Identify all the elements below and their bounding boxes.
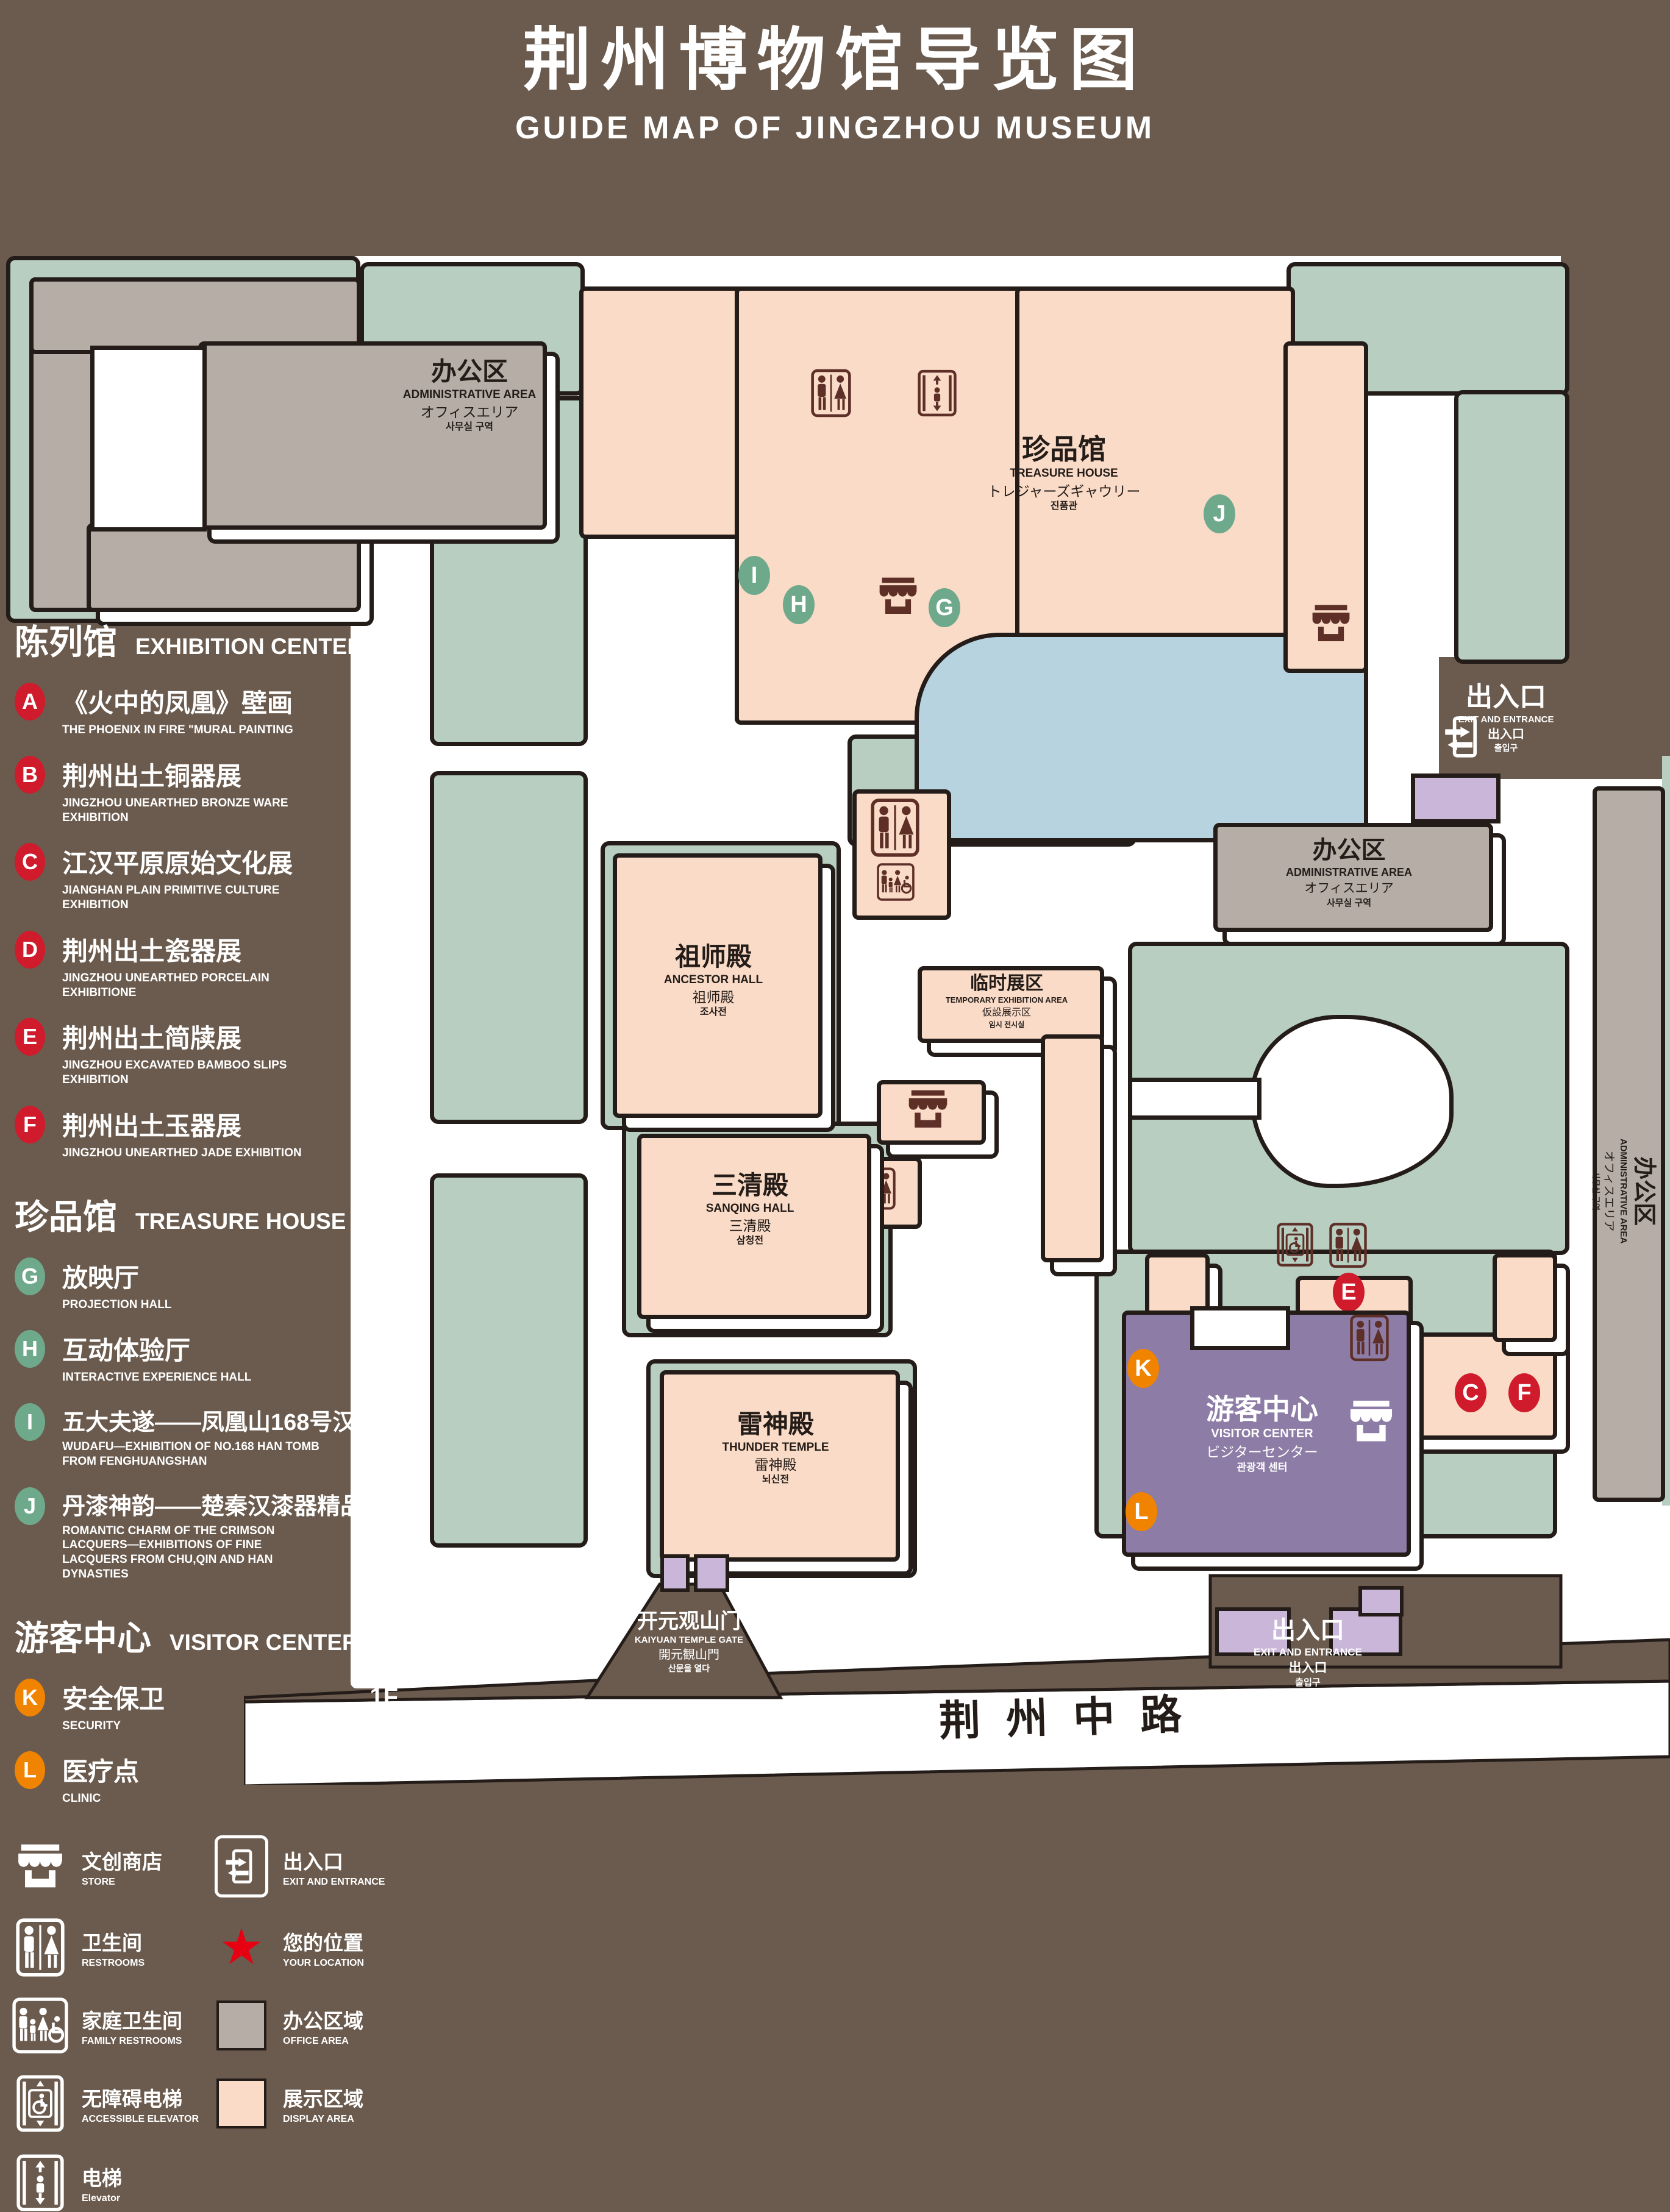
- legend-item-c: C 江汉平原原始文化展 JIANGHAN PLAIN PRIMITIVE CUL…: [15, 843, 430, 912]
- accessible-elevator-icon: [1277, 1219, 1313, 1270]
- legend-symbols: 文创商店 STORE 出入口 EXIT AND ENTRANCE 卫生间 RES…: [12, 1835, 430, 2212]
- symbol-cn: 家庭卫生间: [82, 2005, 182, 2034]
- legend-section-cn: 游客中心: [15, 1611, 151, 1660]
- legend-panel: 陈列馆 EXHIBITION CENTER A 《火中的凤凰》壁画 THE PH…: [0, 594, 430, 2212]
- visitor-center-label: 游客中心 VISITOR CENTER ビジターセンター 관광객 센터: [1146, 1393, 1378, 1474]
- legend-badge-j: J: [15, 1487, 45, 1525]
- symbol-en: YOUR LOCATION: [283, 1958, 364, 1969]
- store-icon: [907, 1086, 949, 1133]
- legend-item-floor: 1F: [369, 688, 398, 715]
- south-exit-gate-small: [1358, 1586, 1404, 1616]
- restrooms-icon: [1329, 1220, 1367, 1270]
- symbol-cn: 办公区域: [283, 2005, 363, 2034]
- legend-item-cn: 荆州出土简牍展: [62, 1018, 324, 1055]
- thunder-label-cn: 雷神殿: [660, 1409, 891, 1440]
- legend-item-en: PROJECTION HALL: [62, 1298, 171, 1312]
- admin-strip-label-en: ADMINISTRATIVE AREA: [1618, 1039, 1629, 1343]
- thunder-label-jp: 雷神殿: [660, 1457, 891, 1473]
- store-icon: [1311, 600, 1351, 647]
- symbol-cn: 文创商店: [82, 1846, 162, 1875]
- admin-strip-label-cn: 办公区: [1630, 1039, 1657, 1343]
- exit-ne-gate: [1411, 773, 1501, 823]
- legend-item-d: D 荆州出土瓷器展 JINGZHOU UNEARTHED PORCELAIN E…: [15, 931, 430, 1000]
- kaiyuan-gate-label: 开元观山门 KAIYUAN TEMPLE GATE 開元観山門 산문을 열다: [604, 1609, 774, 1674]
- legend-item-g: G 放映厅 PROJECTION HALL 1F: [15, 1257, 430, 1312]
- road-name: 荆州中路: [902, 1679, 1245, 1749]
- sanqing-label-kr: 삼청전: [637, 1236, 863, 1247]
- gate-door-left: [660, 1554, 690, 1592]
- restrooms-icon: [1350, 1312, 1389, 1364]
- lawn-left-lower: [430, 1173, 588, 1548]
- exit-south-cn: 出入口: [1232, 1616, 1384, 1645]
- thunder-label-kr: 뇌신전: [660, 1474, 891, 1486]
- legend-symbol-restrooms: 卫生间 RESTROOMS: [12, 1918, 213, 1977]
- legend-symbol-elevator: 电梯 Elevator: [12, 2153, 213, 2212]
- map-marker-i: I: [738, 556, 770, 595]
- temporary-label-jp: 仮設展示区: [918, 1008, 1096, 1019]
- visitor-label-kr: 관광객 센터: [1146, 1462, 1378, 1474]
- legend-item-floor: 1F: [369, 1335, 398, 1362]
- map-marker-j: J: [1204, 494, 1235, 533]
- legend-symbol-store: 文创商店 STORE: [12, 1835, 213, 1897]
- restrooms-icon: [871, 797, 919, 858]
- admin-strip-label-kr: 사무실 구역: [1591, 1039, 1600, 1343]
- admin-mid-label-kr: 사무실 구역: [1213, 898, 1485, 909]
- legend-badge-g: G: [15, 1257, 45, 1295]
- exit-ne-cn2: 出入口: [1433, 728, 1579, 742]
- legend-badge-l: L: [15, 1751, 45, 1789]
- exit-ne-kr: 출입구: [1433, 743, 1579, 753]
- admin-nw-label-en: ADMINISTRATIVE AREA: [317, 388, 622, 402]
- bottom-road-graphic: [244, 1548, 1670, 1785]
- gate-door-right: [694, 1554, 729, 1592]
- treasure-label-kr: 진품관: [939, 501, 1189, 513]
- legend-badge-e: E: [15, 1018, 45, 1056]
- symbol-en: RESTROOMS: [82, 1958, 145, 1969]
- legend-item-l: L 医疗点 CLINIC 1F: [15, 1751, 430, 1806]
- map-marker-g: G: [929, 588, 960, 627]
- exit-south-kr: 출입구: [1232, 1677, 1384, 1688]
- legend-item-en: WUDAFU—EXHIBITION OF NO.168 HAN TOMB FRO…: [62, 1440, 324, 1469]
- symbol-en: FAMILY RESTROOMS: [82, 2036, 182, 2047]
- accessible-elevator-icon: [16, 2074, 64, 2133]
- legend-item-cn: 丹漆神韵——楚秦汉漆器精品展: [62, 1487, 387, 1521]
- legend-item-b: B 荆州出土铜器展 JINGZHOU UNEARTHED BRONZE WARE…: [15, 756, 430, 825]
- legend-badge-d: D: [15, 931, 45, 969]
- legend-section-treasure: 珍品馆 TREASURE HOUSE: [15, 1190, 430, 1239]
- legend-badge-i: I: [15, 1403, 45, 1441]
- legend-section-en: EXHIBITION CENTER: [135, 634, 363, 660]
- page-title: 荆州博物馆导览图 GUIDE MAP OF JINGZHOU MUSEUM: [0, 5, 1670, 146]
- legend-badge-c: C: [15, 843, 45, 881]
- legend-section-visitor: 游客中心 VISITOR CENTER: [15, 1611, 430, 1660]
- exit-ne-cn: 出入口: [1433, 681, 1579, 713]
- legend-item-f: F 荆州出土玉器展 JINGZHOU UNEARTHED JADE EXHIBI…: [15, 1106, 430, 1161]
- treasure-label-cn: 珍品馆: [939, 433, 1189, 466]
- admin-nw-label-cn: 办公区: [317, 357, 622, 387]
- symbol-en: ACCESSIBLE ELEVATOR: [82, 2114, 199, 2125]
- legend-item-en: JINGZHOU EXCAVATED BAMBOO SLIPS EXHIBITI…: [62, 1058, 324, 1087]
- legend-item-k: K 安全保卫 SECURITY 1F: [15, 1679, 430, 1734]
- admin-nw-label: 办公区 ADMINISTRATIVE AREA オフィスエリア 사무실 구역: [317, 357, 622, 433]
- map-marker-e: E: [1333, 1273, 1365, 1312]
- admin-mid-label-jp: オフィスエリア: [1213, 881, 1485, 897]
- legend-item-cn: 医疗点: [62, 1751, 139, 1788]
- legend-symbol-accessible-elevator: 无障碍电梯 ACCESSIBLE ELEVATOR: [12, 2074, 213, 2133]
- legend-badge-h: H: [15, 1330, 45, 1368]
- admin-mid-label-en: ADMINISTRATIVE AREA: [1213, 866, 1485, 879]
- legend-item-en: THE PHOENIX IN FIRE "MURAL PAINTING: [62, 723, 293, 738]
- symbol-en: STORE: [82, 1877, 162, 1888]
- symbol-cn: 出入口: [283, 1846, 385, 1875]
- legend-item-floor: 1F: [369, 1262, 398, 1290]
- visitor-label-jp: ビジターセンター: [1146, 1444, 1378, 1460]
- ancestor-hall-label: 祖师殿 ANCESTOR HALL 祖师殿 조사전: [613, 942, 814, 1019]
- legend-item-floor: 1-2F: [348, 1492, 398, 1520]
- store-icon: [1349, 1397, 1394, 1446]
- legend-item-en: ROMANTIC CHARM OF THE CRIMSON LACQUERS—E…: [62, 1524, 324, 1582]
- gate-label-jp: 開元観山門: [604, 1648, 774, 1663]
- temporary-label-kr: 임시 전시실: [918, 1020, 1096, 1029]
- family-restrooms-icon: [877, 862, 915, 902]
- legend-item-j: J 丹漆神韵——楚秦汉漆器精品展 ROMANTIC CHARM OF THE C…: [15, 1487, 430, 1582]
- admin-strip-label: 办公区 ADMINISTRATIVE AREA オフィスエリア 사무실 구역: [1591, 1039, 1657, 1343]
- treasure-house-label: 珍品馆 TREASURE HOUSE トレジャーズギャウリー 진품관: [939, 433, 1189, 513]
- exit-ne-label: 出入口 EXIT AND ENTRANCE 出入口 출입구: [1433, 681, 1579, 753]
- elevator-icon: [16, 2153, 64, 2212]
- symbol-cn: 您的位置: [283, 1927, 364, 1956]
- visitor-label-cn: 游客中心: [1146, 1393, 1378, 1426]
- thunder-label-en: THUNDER TEMPLE: [660, 1441, 891, 1454]
- legend-badge-a: A: [15, 683, 45, 720]
- symbol-en: DISPLAY AREA: [283, 2114, 363, 2125]
- symbol-en: OFFICE AREA: [283, 2036, 363, 2047]
- your-location-star: ★: [219, 1922, 264, 1972]
- legend-item-h: H 互动体验厅 INTERACTIVE EXPERIENCE HALL 1F: [15, 1330, 430, 1385]
- sanqing-label-jp: 三清殿: [637, 1218, 863, 1234]
- legend-symbol-your-location: ★ 您的位置 YOUR LOCATION: [213, 1918, 427, 1977]
- legend-item-cn: 互动体验厅: [62, 1330, 251, 1367]
- treasure-label-en: TREASURE HOUSE: [939, 467, 1189, 480]
- map-brown-notch-ne-top: [1561, 256, 1670, 657]
- legend-item-floor: 1F: [369, 848, 398, 875]
- legend-symbol-office-area: 办公区域 OFFICE AREA: [213, 1997, 427, 2054]
- legend-item-en: JINGZHOU UNEARTHED PORCELAIN EXHIBITIONE: [62, 971, 324, 1000]
- temporary-exhibition-leg: [1041, 1034, 1104, 1262]
- visitor-center-notch: [1190, 1306, 1290, 1350]
- temporary-label-cn: 临时展区: [918, 973, 1096, 994]
- legend-badge-k: K: [15, 1679, 45, 1716]
- admin-mid-label-cn: 办公区: [1213, 836, 1485, 865]
- legend-item-en: SECURITY: [62, 1719, 165, 1734]
- symbol-en: Elevator: [82, 2193, 122, 2204]
- map-marker-l: L: [1126, 1492, 1157, 1531]
- family-restrooms-icon: [12, 1997, 68, 2054]
- legend-item-en: INTERACTIVE EXPERIENCE HALL: [62, 1370, 251, 1385]
- sanqing-hall-label: 三清殿 SANQING HALL 三清殿 삼청전: [637, 1170, 863, 1247]
- legend-item-en: JINGZHOU UNEARTHED JADE EXHIBITION: [62, 1146, 302, 1161]
- legend-item-cn: 安全保卫: [62, 1679, 165, 1716]
- legend-item-cn: 荆州出土玉器展: [62, 1106, 302, 1143]
- admin-nw-courtyard: [90, 346, 207, 532]
- admin-nw-label-jp: オフィスエリア: [317, 404, 622, 421]
- title-english: GUIDE MAP OF JINGZHOU MUSEUM: [0, 110, 1670, 146]
- legend-section-cn: 陈列馆: [15, 615, 117, 664]
- legend-badge-b: B: [15, 756, 45, 794]
- legend-item-floor: 1F: [369, 1756, 398, 1783]
- legend-item-cn: 荆州出土瓷器展: [62, 931, 324, 968]
- legend-section-cn: 珍品馆: [15, 1190, 117, 1239]
- exit-ne-en: EXIT AND ENTRANCE: [1433, 714, 1579, 725]
- legend-badge-f: F: [15, 1106, 45, 1143]
- legend-symbol-display-area: 展示区域 DISPLAY AREA: [213, 2074, 427, 2133]
- exit-south-en: EXIT AND ENTRANCE: [1232, 1646, 1384, 1659]
- legend-item-cn: 放映厅: [62, 1257, 171, 1295]
- legend-item-cn: 江汉平原原始文化展: [62, 843, 324, 880]
- temporary-label-en: TEMPORARY EXHIBITION AREA: [918, 995, 1096, 1005]
- legend-item-en: JIANGHAN PLAIN PRIMITIVE CULTURE EXHIBIT…: [62, 883, 324, 912]
- legend-section-en: TREASURE HOUSE: [135, 1209, 346, 1234]
- symbol-cn: 卫生间: [82, 1927, 145, 1956]
- legend-item-i: I 五大夫遂——凤凰山168号汉墓展 WUDAFU—EXHIBITION OF …: [15, 1403, 430, 1469]
- admin-strip-label-jp: オフィスエリア: [1602, 1039, 1615, 1343]
- restrooms-icon: [16, 1918, 65, 1977]
- sanqing-label-en: SANQING HALL: [637, 1202, 863, 1215]
- symbol-en: EXIT AND ENTRANCE: [283, 1877, 385, 1888]
- legend-item-e: E 荆州出土简牍展 JINGZHOU EXCAVATED BAMBOO SLIP…: [15, 1018, 430, 1087]
- restrooms-icon: [811, 357, 851, 430]
- lawn-left-middle: [430, 771, 588, 1124]
- legend-section-en: VISITOR CENTER: [169, 1630, 359, 1655]
- map-marker-h: H: [783, 585, 815, 624]
- legend-item-cn: 荆州出土铜器展: [62, 756, 324, 793]
- legend-item-a: A 《火中的凤凰》壁画 THE PHOENIX IN FIRE "MURAL P…: [15, 683, 430, 738]
- store-icon: [878, 573, 918, 619]
- garden-path: [1128, 1078, 1261, 1120]
- legend-item-floor: 2F: [369, 1111, 398, 1138]
- legend-section-exhibition: 陈列馆 EXHIBITION CENTER: [15, 615, 430, 664]
- exit-south-label: 出入口 EXIT AND ENTRANCE 出入口 출입구: [1232, 1616, 1384, 1688]
- thunder-temple-label: 雷神殿 THUNDER TEMPLE 雷神殿 뇌신전: [660, 1409, 891, 1486]
- exhibition-center-wing-right: [1493, 1253, 1557, 1342]
- legend-item-floor: 2F: [369, 936, 398, 963]
- gate-label-kr: 산문을 열다: [604, 1663, 774, 1674]
- exit-iconbox: [215, 1835, 268, 1897]
- elevator-icon: [918, 357, 957, 430]
- title-chinese: 荆州博物馆导览图: [0, 5, 1670, 104]
- sanqing-label-cn: 三清殿: [637, 1170, 863, 1201]
- symbol-cn: 电梯: [82, 2162, 122, 2191]
- temporary-exhibition-label: 临时展区 TEMPORARY EXHIBITION AREA 仮設展示区 임시 …: [918, 973, 1096, 1029]
- map-marker-k: K: [1127, 1349, 1159, 1388]
- gate-label-cn: 开元观山门: [604, 1609, 774, 1634]
- legend-symbol-family-restrooms: 家庭卫生间 FAMILY RESTROOMS: [12, 1997, 213, 2054]
- ancestor-label-jp: 祖师殿: [613, 989, 814, 1006]
- legend-item-floor: 2F: [369, 1023, 398, 1050]
- symbol-cn: 展示区域: [283, 2083, 363, 2112]
- exit-south-cn2: 出入口: [1232, 1661, 1384, 1676]
- gate-label-en: KAIYUAN TEMPLE GATE: [604, 1635, 774, 1646]
- exit-icon: [224, 1847, 259, 1885]
- symbol-cn: 无障碍电梯: [82, 2083, 199, 2112]
- legend-item-floor: 1F: [369, 1684, 398, 1711]
- ancestor-label-cn: 祖师殿: [613, 942, 814, 972]
- legend-symbol-exit: 出入口 EXIT AND ENTRANCE: [213, 1835, 427, 1897]
- map-marker-c: C: [1455, 1373, 1486, 1412]
- office-area-swatch: [216, 2000, 266, 2050]
- lawn-right-column: [1454, 390, 1569, 664]
- legend-item-en: CLINIC: [62, 1791, 139, 1806]
- admin-nw-label-kr: 사무실 구역: [317, 422, 622, 433]
- ancestor-label-en: ANCESTOR HALL: [613, 973, 814, 987]
- ancestor-label-kr: 조사전: [613, 1007, 814, 1019]
- legend-item-floor: 1F: [369, 761, 398, 788]
- display-area-swatch: [216, 2079, 266, 2128]
- map-marker-f: F: [1508, 1373, 1540, 1412]
- legend-item-cn: 《火中的凤凰》壁画: [62, 683, 293, 720]
- legend-item-floor: 2F: [369, 1408, 398, 1435]
- admin-mid-label: 办公区 ADMINISTRATIVE AREA オフィスエリア 사무실 구역: [1213, 836, 1485, 909]
- legend-item-en: JINGZHOU UNEARTHED BRONZE WARE EXHIBITIO…: [62, 796, 324, 825]
- legend-item-cn: 五大夫遂——凤凰山168号汉墓展: [62, 1403, 402, 1437]
- treasure-label-jp: トレジャーズギャウリー: [939, 483, 1189, 500]
- store-icon: [15, 1843, 66, 1890]
- visitor-label-en: VISITOR CENTER: [1146, 1427, 1378, 1442]
- garden-pond-path: [1250, 1015, 1454, 1188]
